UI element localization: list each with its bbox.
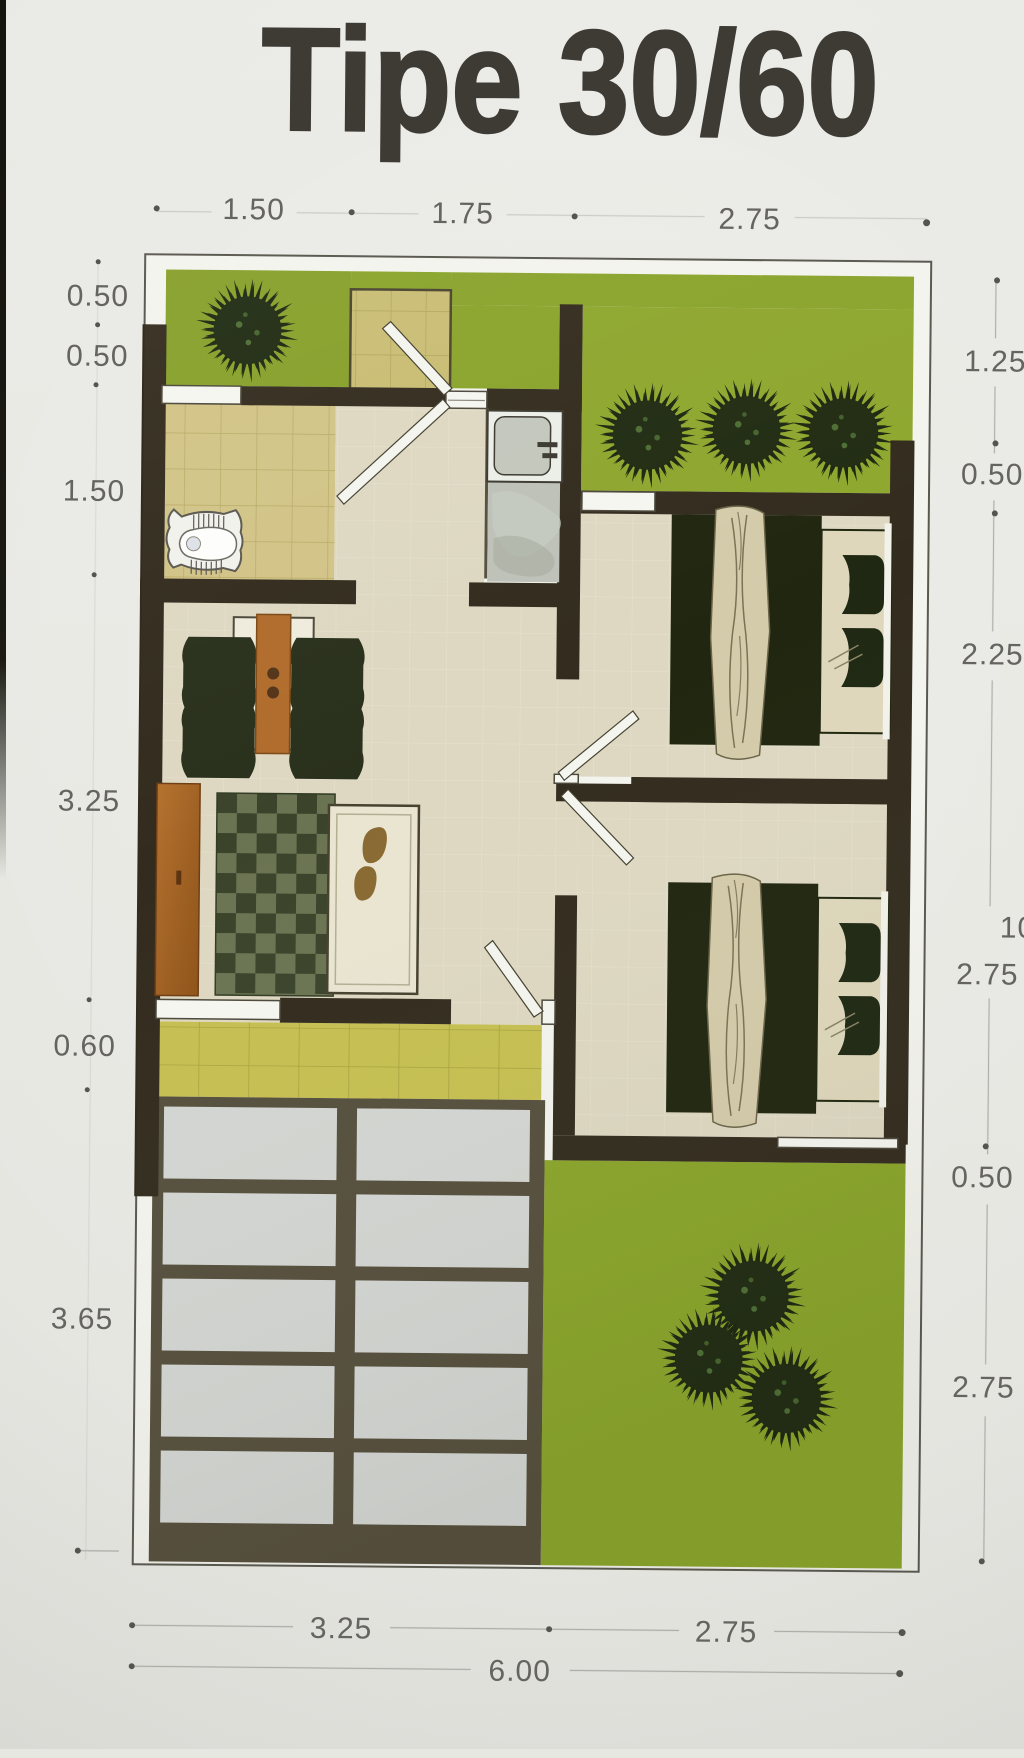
svg-text:Tipe 30/60: Tipe 30/60 (261, 2, 879, 166)
